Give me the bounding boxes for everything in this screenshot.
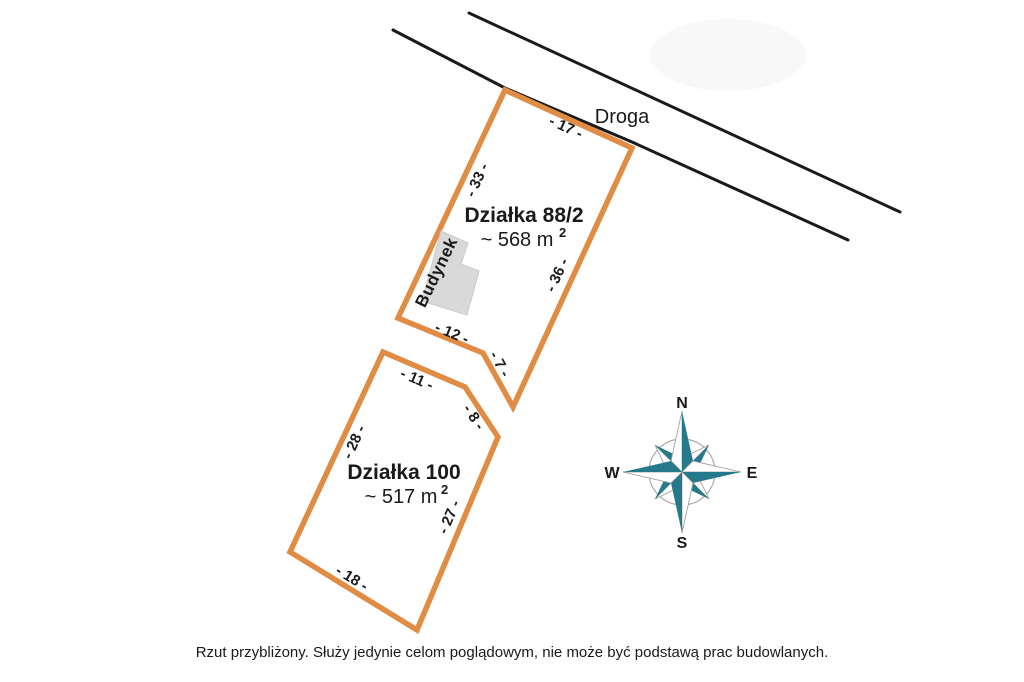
compass-point-e-white [682,461,741,472]
parcel-100-name: Działka 100 [347,461,460,484]
plot-map-canvas: Droga Budynek Działka 88/2 ~ 568 m 2 - 1… [0,0,1024,682]
parcel-100-area: ~ 517 m [365,486,438,508]
parcel-100-area-exponent: 2 [441,482,448,497]
compass-south-label: S [677,535,688,552]
road-label: Droga [595,106,650,128]
compass-rose: N E S W [604,395,757,552]
parcel-88-2-area-exponent: 2 [559,225,566,240]
compass-point-w-white [623,472,682,483]
compass-east-label: E [747,465,758,482]
site-plan: Droga Budynek Działka 88/2 ~ 568 m 2 - 1… [0,0,1024,682]
watermark-remnant [650,19,806,91]
disclaimer-text: Rzut przybliżony. Służy jedynie celom po… [0,644,1024,661]
parcel-88-2-area: ~ 568 m [481,229,554,251]
compass-west-label: W [604,465,620,482]
parcel-88-2-name: Działka 88/2 [464,204,583,227]
compass-north-label: N [676,395,688,412]
compass-point-s-white [682,472,693,533]
